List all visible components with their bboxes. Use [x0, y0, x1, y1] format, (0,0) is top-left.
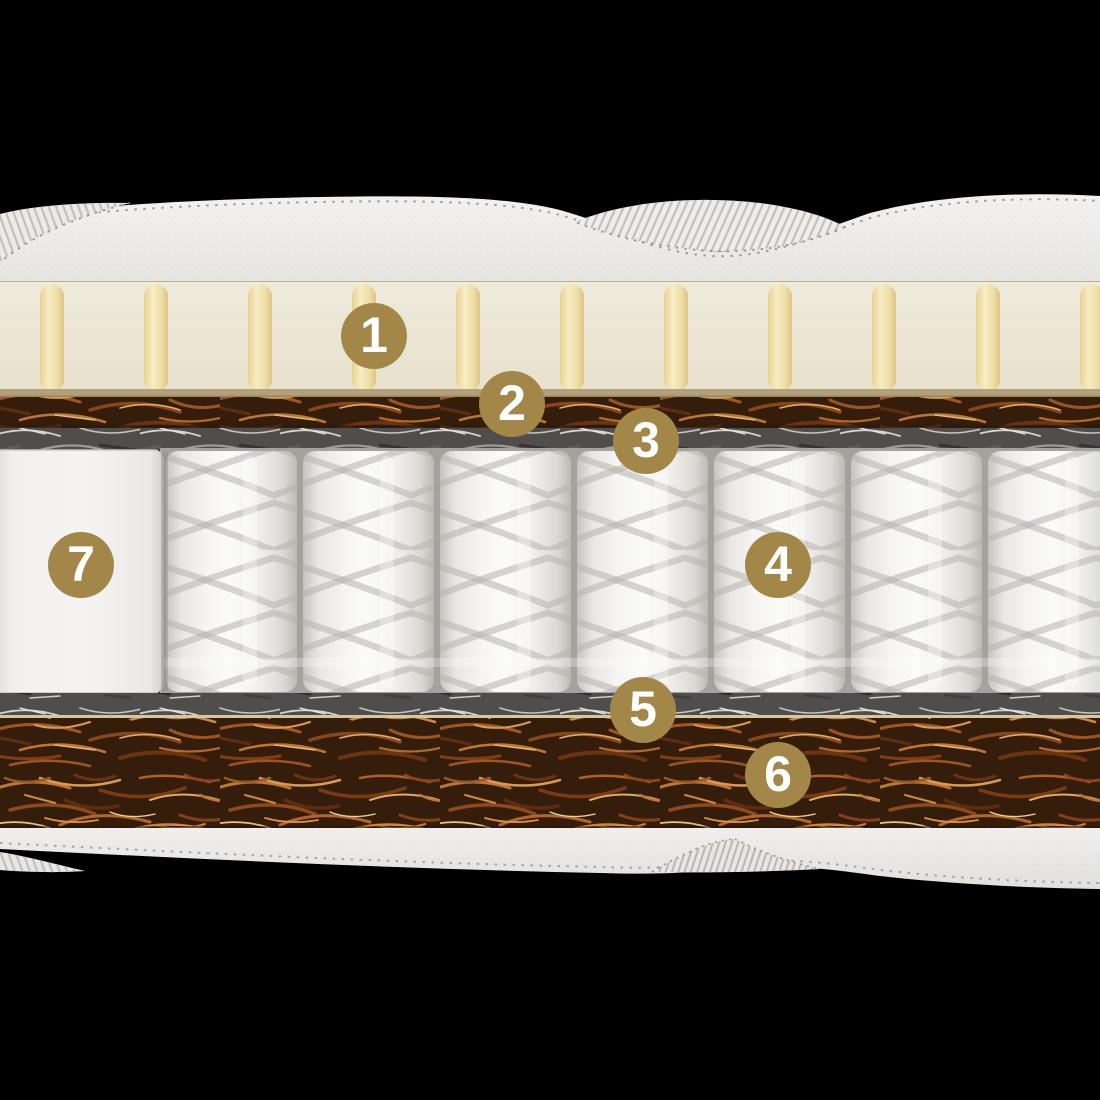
layer-marker-3: 3 — [613, 408, 679, 474]
layer-marker-1: 1 — [341, 303, 407, 369]
felt-layer-top — [0, 428, 1100, 450]
coir-layer-bottom — [0, 715, 1100, 829]
coir-layer-top — [0, 397, 1100, 428]
spring-layer — [160, 448, 1100, 694]
mattress-layers-diagram: 1 2 3 4 5 6 7 — [0, 0, 1100, 1100]
latex-layer — [0, 279, 1100, 397]
pocket-spring-columns — [166, 451, 1100, 692]
layer-marker-4: 4 — [745, 532, 811, 598]
felt-layer-bottom — [0, 693, 1100, 716]
layer-marker-5: 5 — [610, 677, 676, 743]
layer-marker-2: 2 — [479, 371, 545, 437]
layer-marker-7: 7 — [48, 532, 114, 598]
mattress-cross-section-illustration — [0, 0, 1100, 1100]
layer-marker-6: 6 — [745, 742, 811, 808]
